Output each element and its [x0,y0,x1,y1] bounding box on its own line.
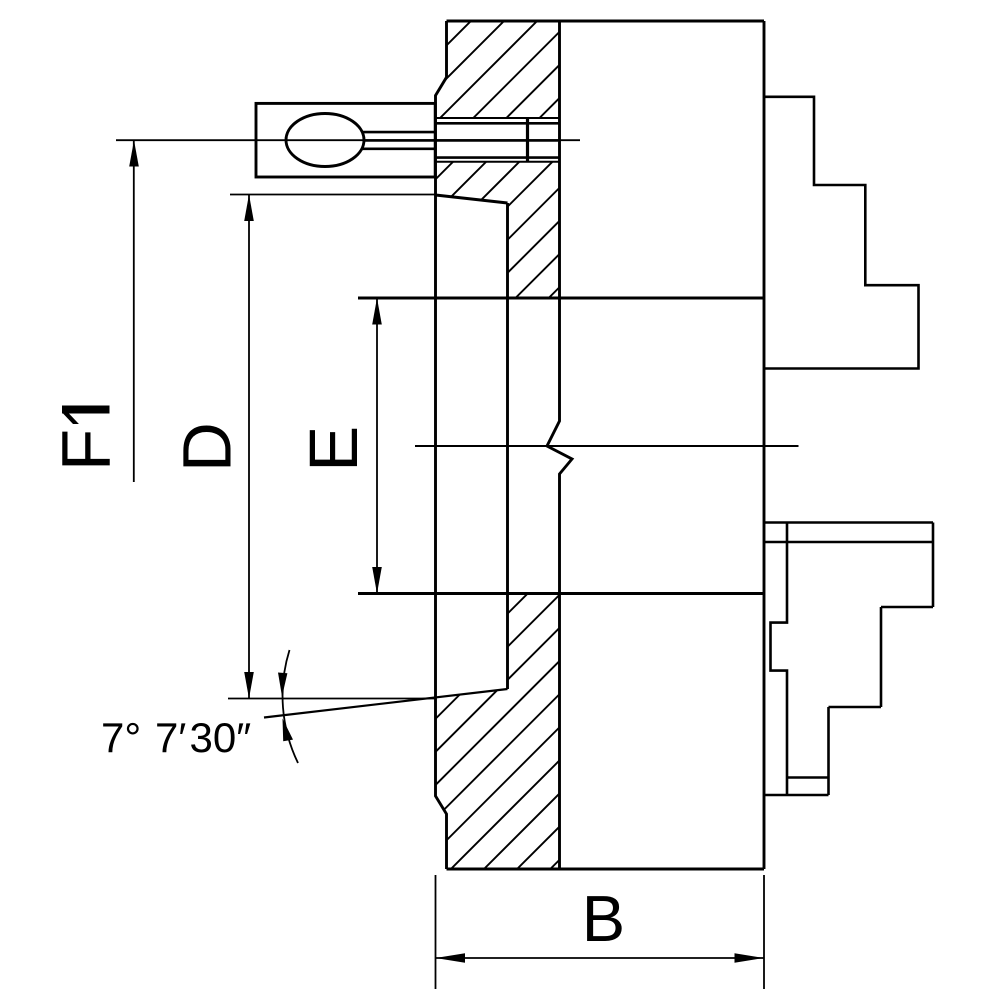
svg-text:7′: 7′ [155,714,186,761]
svg-text:F: F [48,429,125,471]
svg-text:B: B [582,882,625,955]
svg-text:D: D [169,422,246,472]
svg-text:7°: 7° [101,714,141,761]
svg-text:E: E [295,426,372,472]
svg-text:30″: 30″ [190,714,252,761]
